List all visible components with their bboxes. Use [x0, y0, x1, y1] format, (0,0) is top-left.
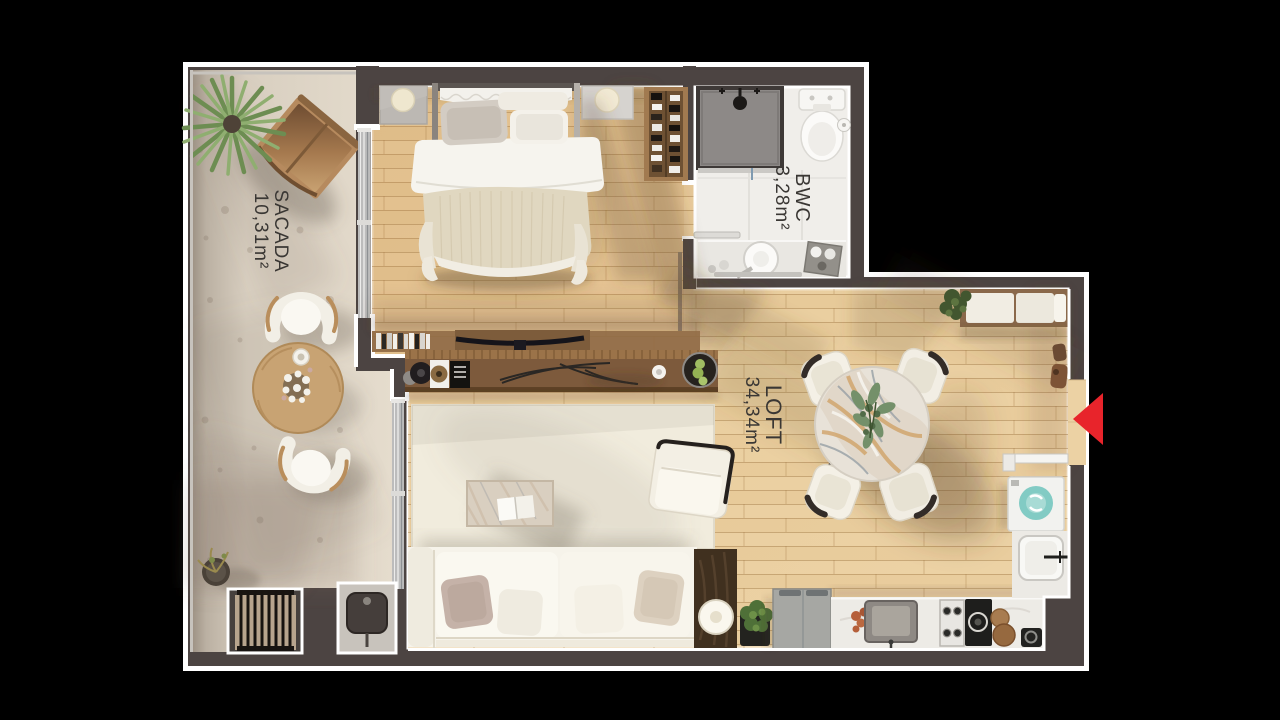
svg-text:BWC3,28m²: BWC3,28m²	[771, 165, 813, 230]
svg-text:LOFT34,34m²: LOFT34,34m²	[741, 377, 786, 454]
svg-text:SACADA10,31m²: SACADA10,31m²	[250, 190, 291, 273]
